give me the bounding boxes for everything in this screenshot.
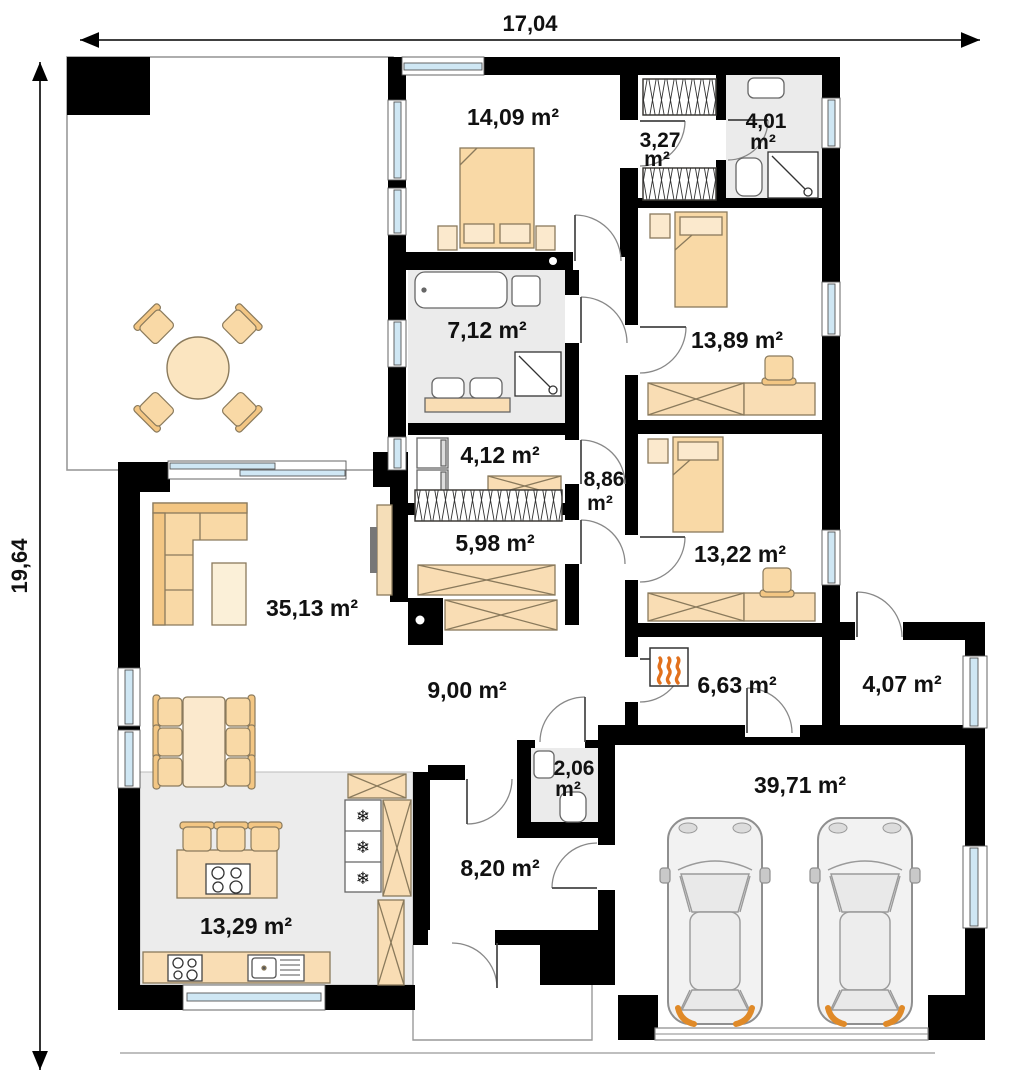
room-label-bedroom-master: 14,09 m²	[467, 104, 559, 130]
car-icon	[810, 818, 920, 1024]
window	[388, 188, 406, 235]
window	[822, 530, 840, 585]
sliding-door-terrace	[168, 461, 346, 479]
room-label-closet-2: m²	[644, 148, 670, 171]
bed-master	[438, 148, 555, 250]
window	[388, 437, 406, 470]
floor-plan: 17,04 19,64	[0, 0, 1010, 1080]
kitchen-counter	[143, 952, 330, 983]
dining-set	[153, 695, 255, 789]
car-icon	[660, 818, 770, 1024]
garage-contents	[655, 818, 928, 1040]
window	[963, 656, 987, 728]
bedroom3-furniture	[648, 437, 815, 621]
room-label-entry: 8,20 m²	[460, 855, 540, 881]
floor-plan-svg: 17,04 19,64	[0, 0, 1010, 1080]
room-label-bath-ensuite-2: m²	[750, 131, 776, 154]
window	[963, 846, 987, 928]
kitchen-island	[177, 850, 277, 898]
room-label-boiler: 6,63 m²	[697, 672, 777, 698]
room-label-bedroom-2: 13,89 m²	[691, 327, 783, 353]
room-label-bath-ensuite-1: 4,01	[746, 110, 787, 133]
room-label-bedroom-3: 13,22 m²	[694, 541, 786, 567]
tv-icon	[370, 527, 377, 573]
dimension-height: 19,64	[7, 538, 32, 594]
snowflake-icon: ❄	[356, 838, 370, 857]
window	[822, 282, 840, 336]
room-label-hall: 9,00 m²	[427, 677, 507, 703]
window	[822, 98, 840, 148]
room-label-wc-2: m²	[555, 778, 581, 801]
terrace-table	[167, 337, 229, 399]
room-label-kitchen: 13,29 m²	[200, 913, 292, 939]
window	[118, 730, 140, 788]
window	[183, 985, 325, 1010]
window	[388, 320, 406, 367]
room-label-bath-main: 7,12 m²	[447, 317, 527, 343]
terrace	[67, 57, 393, 470]
window	[118, 668, 140, 726]
window	[388, 100, 406, 180]
dimension-width: 17,04	[502, 11, 558, 36]
room-label-wardrobe-hall: 5,98 m²	[455, 530, 535, 556]
room-label-corridor-2: m²	[587, 492, 613, 515]
snowflake-icon: ❄	[356, 869, 370, 888]
room-label-garage: 39,71 m²	[754, 772, 846, 798]
window	[402, 57, 484, 75]
room-label-pantry: 4,07 m²	[862, 671, 942, 697]
room-label-corridor-1: 8,86	[584, 468, 625, 491]
room-label-laundry: 4,12 m²	[460, 442, 540, 468]
bedroom2-furniture	[648, 212, 815, 415]
room-label-living: 35,13 m²	[266, 595, 358, 621]
boiler-fireplace	[650, 648, 688, 686]
room-label-wc-1: 2,06	[554, 757, 595, 780]
snowflake-icon: ❄	[356, 807, 370, 826]
